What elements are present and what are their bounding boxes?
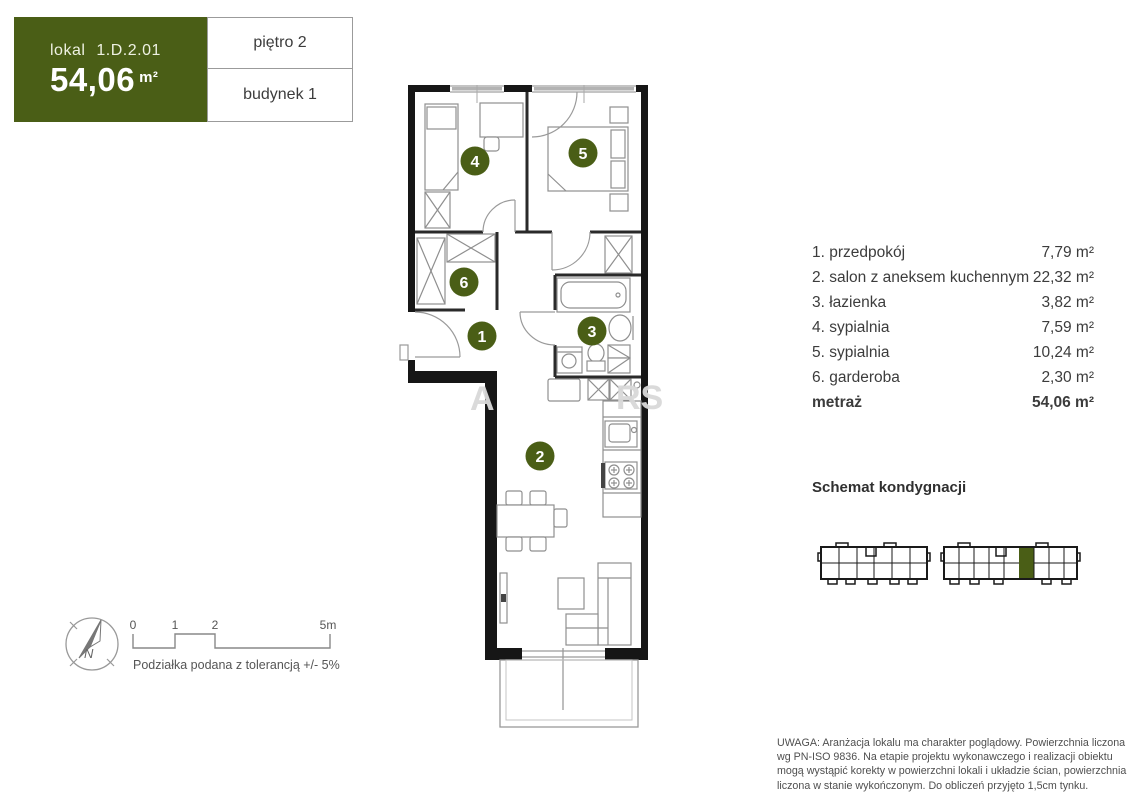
- svg-text:6: 6: [460, 275, 469, 292]
- sink-icon: [609, 315, 631, 341]
- room-badge-3: 3: [578, 317, 607, 346]
- svg-text:2: 2: [212, 618, 219, 632]
- unit-id-line: lokal1.D.2.01: [50, 42, 207, 60]
- floor-plan: A RS 1 2 3 4 5: [400, 84, 663, 727]
- room-area: 22,32 m²: [1033, 269, 1094, 287]
- svg-text:3: 3: [588, 324, 597, 341]
- lokal-label: lokal: [50, 42, 85, 59]
- room-row-1: 1. przedpokój 7,79 m²: [812, 240, 1094, 265]
- floor-label: piętro 2: [253, 34, 306, 52]
- room-area: 2,30 m²: [1041, 369, 1094, 387]
- room-row-6: 6. garderoba 2,30 m²: [812, 365, 1094, 390]
- scale-tolerance-note: Podziałka podana z tolerancją +/- 5%: [133, 658, 340, 672]
- total-label: metraż: [812, 394, 862, 412]
- disclaimer-note: UWAGA: Aranżacja lokalu ma charakter pog…: [777, 736, 1127, 793]
- unit-card: lokal1.D.2.01 54,06m²: [14, 17, 207, 122]
- room-list: 1. przedpokój 7,79 m² 2. salon z aneksem…: [812, 240, 1094, 415]
- lokal-id: 1.D.2.01: [96, 42, 160, 59]
- floor-schematic-left: [818, 543, 930, 584]
- toilet-icon: [588, 344, 604, 362]
- room-badge-4: 4: [461, 147, 490, 176]
- floor-box: piętro 2: [207, 17, 353, 69]
- svg-text:4: 4: [471, 154, 480, 171]
- room-badge-6: 6: [450, 268, 479, 297]
- living-furniture: [500, 563, 631, 645]
- svg-text:5: 5: [579, 146, 588, 163]
- sofa-icon: [598, 563, 631, 645]
- svg-text:A: A: [470, 380, 495, 418]
- scale-bar: 0 1 2 5m Podziałka podana z tolerancją +…: [130, 618, 340, 672]
- unit-area-value: 54,06: [50, 61, 135, 98]
- room-label: 5. sypialnia: [812, 344, 890, 362]
- room-area: 7,79 m²: [1041, 244, 1094, 262]
- hall-wardrobe: [605, 236, 632, 273]
- floor-schematic-right: [941, 543, 1080, 584]
- room-area: 7,59 m²: [1041, 319, 1094, 337]
- unit-area-line: 54,06m²: [50, 61, 207, 99]
- svg-text:2: 2: [536, 449, 545, 466]
- svg-text:N: N: [84, 646, 94, 661]
- room-row-2: 2. salon z aneksem kuchennym 22,32 m²: [812, 265, 1094, 290]
- room-badge-2: 2: [526, 442, 555, 471]
- room-row-total: metraż 54,06 m²: [812, 390, 1094, 415]
- highlighted-unit: [1019, 548, 1034, 578]
- room-label: 6. garderoba: [812, 369, 900, 387]
- window-bedroom-5: [532, 84, 636, 103]
- room-badge-1: 1: [468, 322, 497, 351]
- dining-set: [497, 491, 567, 551]
- room-label: 2. salon z aneksem kuchennym: [812, 269, 1029, 287]
- building-box: budynek 1: [207, 68, 353, 122]
- washer-icon: [557, 347, 582, 373]
- room-label: 3. łazienka: [812, 294, 886, 312]
- svg-text:RS: RS: [616, 379, 663, 417]
- compass-icon: N: [66, 618, 118, 670]
- svg-text:5m: 5m: [320, 618, 337, 632]
- svg-text:0: 0: [130, 618, 137, 632]
- balcony: [500, 648, 638, 727]
- room-area: 3,82 m²: [1041, 294, 1094, 312]
- floorplan-page: { "unit_card": { "lokal_label": "lokal",…: [0, 0, 1138, 800]
- schemat-kondygnacji-title: Schemat kondygnacji: [812, 479, 966, 496]
- room-label: 4. sypialnia: [812, 319, 890, 337]
- room-row-3: 3. łazienka 3,82 m²: [812, 290, 1094, 315]
- total-area: 54,06 m²: [1032, 394, 1094, 412]
- room-row-5: 5. sypialnia 10,24 m²: [812, 340, 1094, 365]
- unit-area-unit: m²: [139, 69, 158, 86]
- kitchen-counter: [601, 401, 641, 517]
- svg-text:1: 1: [172, 618, 179, 632]
- room-area: 10,24 m²: [1033, 344, 1094, 362]
- svg-text:1: 1: [478, 329, 487, 346]
- room-label: 1. przedpokój: [812, 244, 905, 262]
- room-badge-5: 5: [569, 139, 598, 168]
- window-bedroom-4: [450, 84, 504, 103]
- building-label: budynek 1: [243, 86, 317, 104]
- room-row-4: 4. sypialnia 7,59 m²: [812, 315, 1094, 340]
